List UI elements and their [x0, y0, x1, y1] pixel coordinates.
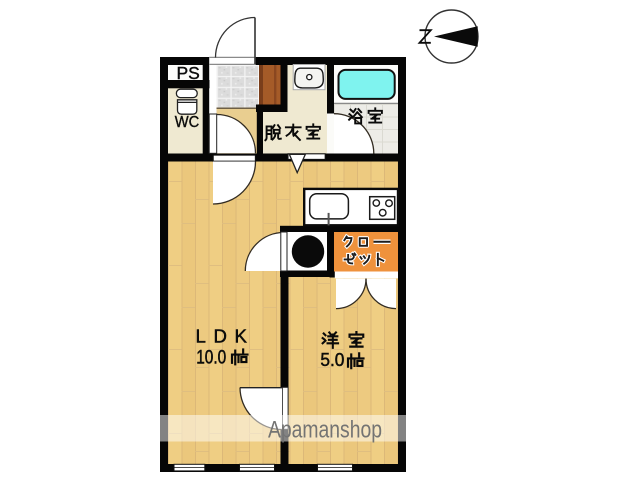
- svg-text:10.0: 10.0: [196, 348, 226, 369]
- svg-text:PS: PS: [177, 63, 200, 83]
- svg-text:5.0: 5.0: [320, 350, 344, 370]
- svg-text:WC: WC: [175, 114, 200, 131]
- svg-text:LDK: LDK: [196, 326, 255, 347]
- svg-text:Apamanshop: Apamanshop: [268, 417, 382, 444]
